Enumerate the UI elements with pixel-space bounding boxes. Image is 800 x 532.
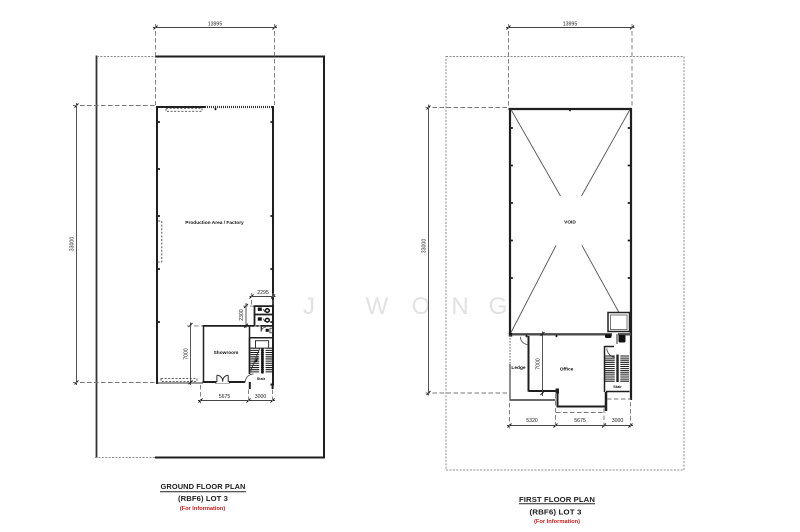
svg-text:N: N (451, 293, 468, 320)
svg-text:FIRST FLOOR PLAN: FIRST FLOOR PLAN (519, 495, 595, 504)
svg-text:2295: 2295 (257, 290, 269, 296)
svg-text:2300: 2300 (239, 309, 245, 321)
svg-text:Stair: Stair (613, 385, 622, 389)
svg-text:G: G (489, 293, 508, 320)
svg-text:VOID: VOID (564, 220, 576, 226)
svg-text:5675: 5675 (574, 418, 586, 424)
svg-text:5320: 5320 (526, 418, 538, 424)
svg-text:7000: 7000 (184, 348, 190, 360)
svg-text:(For Information): (For Information) (180, 506, 226, 512)
svg-text:7000: 7000 (536, 358, 542, 370)
svg-text:O: O (412, 293, 431, 320)
svg-text:33000: 33000 (70, 237, 76, 252)
svg-text:13995: 13995 (563, 22, 578, 28)
svg-text:(For Information): (For Information) (534, 519, 580, 525)
svg-text:Office: Office (560, 367, 574, 373)
svg-text:33000: 33000 (422, 239, 428, 254)
svg-text:(RBF6) LOT 3: (RBF6) LOT 3 (178, 494, 228, 503)
svg-text:Production Area / Factory: Production Area / Factory (185, 220, 244, 226)
svg-text:Stair: Stair (257, 377, 266, 381)
svg-text:13995: 13995 (208, 22, 223, 28)
svg-text:Showroom: Showroom (214, 350, 239, 356)
svg-text:J: J (303, 293, 315, 320)
svg-text:GROUND FLOOR PLAN: GROUND FLOOR PLAN (161, 482, 246, 491)
svg-text:5675: 5675 (219, 394, 231, 400)
svg-text:3000: 3000 (612, 418, 624, 424)
svg-text:3000: 3000 (255, 394, 267, 400)
svg-text:(RBF6) LOT 3: (RBF6) LOT 3 (530, 508, 582, 517)
svg-text:Ledge: Ledge (511, 365, 525, 371)
svg-text:W: W (366, 293, 389, 320)
